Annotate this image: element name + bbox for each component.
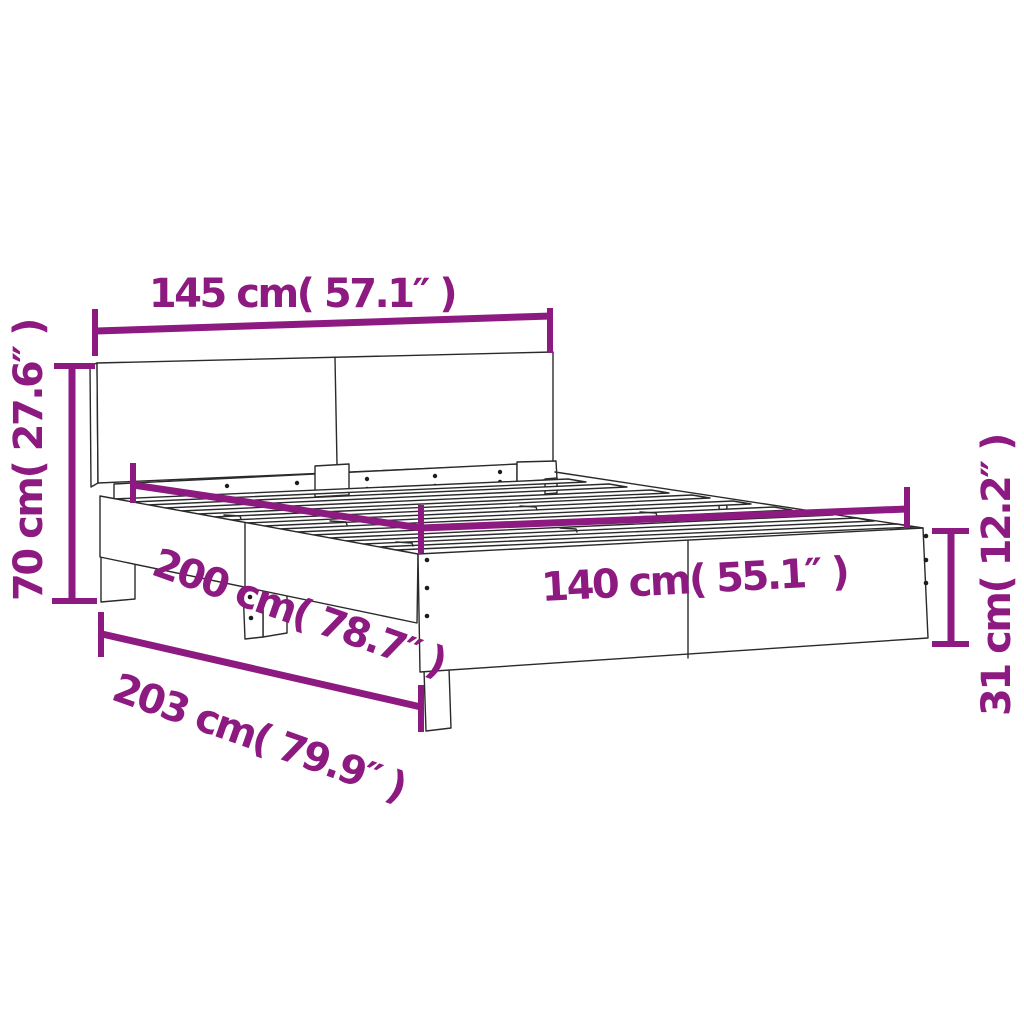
diagram-canvas: 145 cm( 57.1″ ) 70 cm( 27.6″ ) 200 cm( 7…: [0, 0, 1024, 1024]
screw-hole: [924, 534, 929, 539]
label-total-length: 203 cm( 79.9″ ): [107, 665, 411, 811]
screw-hole: [425, 586, 430, 591]
headboard-panel: [97, 352, 553, 483]
label-headboard-height: 70 cm( 27.6″ ): [6, 320, 52, 601]
bed-frame-dimension-diagram: 145 cm( 57.1″ ) 70 cm( 27.6″ ) 200 cm( 7…: [0, 0, 1024, 1024]
label-headboard-width: 145 cm( 57.1″ ): [149, 271, 455, 317]
dimension-frame-height: 31 cm( 12.2″ ): [932, 435, 1020, 716]
screw-hole: [425, 614, 430, 619]
dimension-headboard-width: 145 cm( 57.1″ ): [95, 271, 551, 356]
screw-hole: [924, 558, 929, 563]
dimension-headboard-height: 70 cm( 27.6″ ): [6, 320, 97, 601]
screw-hole: [365, 477, 369, 481]
screw-hole: [425, 558, 430, 563]
screw-hole: [498, 470, 502, 474]
screw-hole: [225, 484, 229, 488]
screw-hole: [924, 581, 929, 586]
screw-hole: [433, 474, 437, 478]
screw-hole: [295, 481, 299, 485]
label-frame-height: 31 cm( 12.2″ ): [974, 435, 1020, 716]
